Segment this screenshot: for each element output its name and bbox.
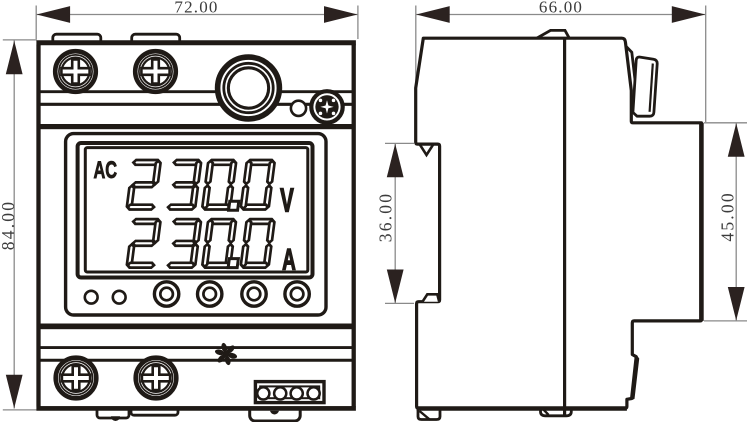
svg-text:36.00: 36.00 bbox=[376, 192, 396, 242]
svg-text:AC: AC bbox=[94, 157, 118, 184]
svg-text:66.00: 66.00 bbox=[539, 0, 583, 16]
svg-text:84.00: 84.00 bbox=[0, 200, 18, 250]
svg-text:A: A bbox=[282, 243, 295, 277]
svg-text:V: V bbox=[280, 181, 294, 218]
svg-text:72.00: 72.00 bbox=[174, 0, 218, 16]
svg-text:45.00: 45.00 bbox=[718, 191, 738, 241]
